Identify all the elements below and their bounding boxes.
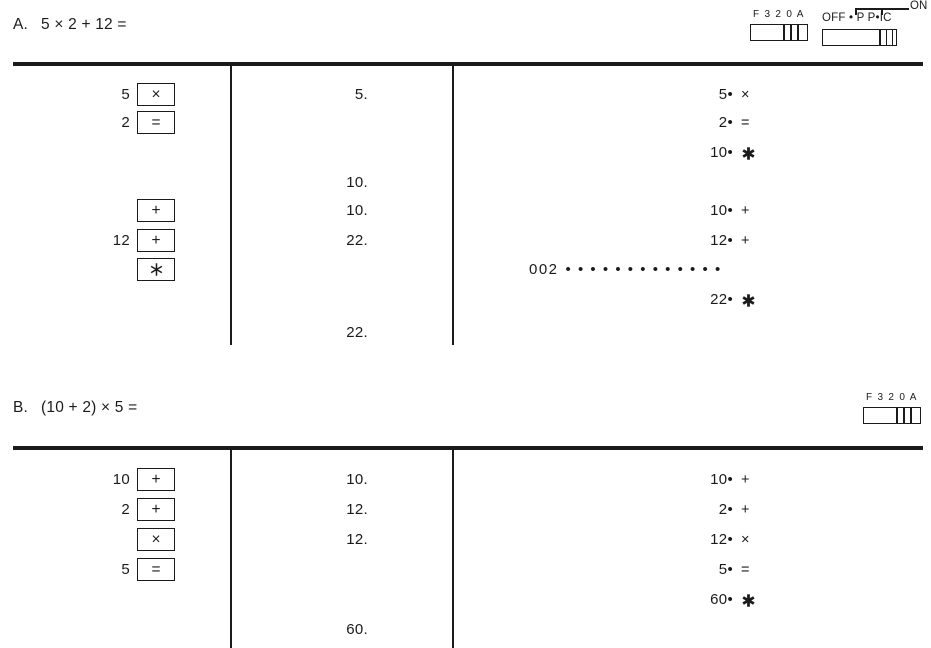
table-row: 10• <box>0 142 931 164</box>
slider-grip-line <box>783 25 785 40</box>
calculator-key: + <box>137 498 175 521</box>
example-a-title: A.5 × 2 + 12 = <box>13 16 127 34</box>
print-operator-glyph: × <box>741 529 749 551</box>
item-count-value: 002 <box>529 261 559 278</box>
slider-grip-line <box>896 408 898 423</box>
print-operator: × <box>741 84 771 106</box>
print-operator <box>741 289 771 311</box>
table-row: 22• <box>0 289 931 311</box>
print-operator-glyph: + <box>741 499 749 521</box>
slider-grip-line <box>903 408 905 423</box>
key-entry-number: 5 <box>0 559 130 581</box>
slider-body <box>822 29 897 46</box>
print-operator: + <box>741 469 771 491</box>
power-switch-labels: OFF • P P•IC <box>822 12 892 24</box>
table-row: 5=5•= <box>0 559 931 581</box>
example-label: B. <box>13 399 28 416</box>
table-row: 60. <box>0 619 931 641</box>
calculator-key: + <box>137 199 175 222</box>
calculator-key: + <box>137 468 175 491</box>
calculator-key: = <box>137 558 175 581</box>
print-operator-glyph: + <box>741 469 749 491</box>
key-entry-number: 5 <box>0 84 130 106</box>
example-expression: (10 + 2) × 5 = <box>41 399 137 416</box>
print-operator-glyph: = <box>741 559 749 581</box>
print-operator-glyph: × <box>741 84 749 106</box>
display-readout: 10. <box>232 469 368 491</box>
key-entry-number: 2 <box>0 112 130 134</box>
table-row: 5×5.5•× <box>0 84 931 106</box>
table-row: 22. <box>0 322 931 344</box>
slider-body <box>750 24 808 41</box>
example-label: A. <box>13 16 28 33</box>
key-glyph: + <box>151 203 160 219</box>
key-glyph: = <box>151 562 160 578</box>
decimal-mode-switch: F 3 2 0 A <box>750 9 808 41</box>
table-row: ×12.12•× <box>0 529 931 551</box>
calculator-key: = <box>137 111 175 134</box>
item-count-line: 002••••••••••••• <box>529 259 727 281</box>
key-entry-number: 2 <box>0 499 130 521</box>
key-entry-number: 10 <box>0 469 130 491</box>
display-readout: 5. <box>232 84 368 106</box>
power-on-label: ON <box>910 0 927 12</box>
slider-grip-line <box>910 408 912 423</box>
key-entry-number: 12 <box>0 230 130 252</box>
key-glyph: + <box>151 233 160 249</box>
slider-grip-line <box>797 25 799 40</box>
key-glyph: = <box>151 115 160 131</box>
calculator-key: + <box>137 229 175 252</box>
asterisk-key-icon <box>149 262 164 277</box>
print-amount: 5• <box>452 559 733 581</box>
print-amount: 10• <box>452 469 733 491</box>
print-operator: + <box>741 200 771 222</box>
display-readout: 10. <box>232 200 368 222</box>
table-row: 10. <box>0 172 931 194</box>
display-readout: 12. <box>232 499 368 521</box>
print-operator: = <box>741 559 771 581</box>
display-readout: 22. <box>232 230 368 252</box>
key-glyph: × <box>151 87 160 103</box>
display-readout: 60. <box>232 619 368 641</box>
key-glyph: + <box>151 502 160 518</box>
print-amount: 10• <box>452 142 733 164</box>
table-row: 10+10.10•+ <box>0 469 931 491</box>
print-amount: 12• <box>452 529 733 551</box>
print-amount: 12• <box>452 230 733 252</box>
total-asterisk-icon <box>741 593 756 608</box>
decimal-mode-switch-label: F 3 2 0 A <box>863 392 921 403</box>
item-count-dots: ••••••••••••• <box>566 261 728 278</box>
table-row: 2+12.2•+ <box>0 499 931 521</box>
print-operator: + <box>741 499 771 521</box>
calculator-key: × <box>137 83 175 106</box>
print-operator <box>741 142 771 164</box>
table-row: +10.10•+ <box>0 200 931 222</box>
calculator-key <box>137 258 175 281</box>
print-operator-glyph: = <box>741 112 749 134</box>
example-b-title: B.(10 + 2) × 5 = <box>13 399 137 417</box>
table-row: 2=2•= <box>0 112 931 134</box>
print-operator: + <box>741 230 771 252</box>
print-amount: 2• <box>452 112 733 134</box>
print-operator: = <box>741 112 771 134</box>
print-amount: 2• <box>452 499 733 521</box>
table-top-rule <box>13 446 923 450</box>
decimal-mode-switch-label: F 3 2 0 A <box>750 9 808 20</box>
slider-grip-line <box>790 25 792 40</box>
print-amount: 5• <box>452 84 733 106</box>
print-operator: × <box>741 529 771 551</box>
table-row: 12+22.12•+ <box>0 230 931 252</box>
table-top-rule <box>13 62 923 66</box>
print-amount: 60• <box>452 589 733 611</box>
table-row: 60• <box>0 589 931 611</box>
calculator-key: × <box>137 528 175 551</box>
slider-grip-line <box>879 30 881 45</box>
display-readout: 12. <box>232 529 368 551</box>
slider-grip-line <box>892 30 894 45</box>
print-amount: 10• <box>452 200 733 222</box>
power-mode-switch: ON OFF • P P•IC <box>822 1 930 49</box>
example-expression: 5 × 2 + 12 = <box>41 16 127 33</box>
key-glyph: + <box>151 472 160 488</box>
table-row: 002••••••••••••• <box>0 259 931 281</box>
display-readout: 10. <box>232 172 368 194</box>
decimal-mode-switch: F 3 2 0 A <box>863 392 921 424</box>
slider-grip-line <box>886 30 888 45</box>
total-asterisk-icon <box>741 146 756 161</box>
total-asterisk-icon <box>741 293 756 308</box>
print-operator <box>741 589 771 611</box>
print-amount: 22• <box>452 289 733 311</box>
print-operator-glyph: + <box>741 230 749 252</box>
slider-body <box>863 407 921 424</box>
display-readout: 22. <box>232 322 368 344</box>
print-operator-glyph: + <box>741 200 749 222</box>
key-glyph: × <box>151 532 160 548</box>
